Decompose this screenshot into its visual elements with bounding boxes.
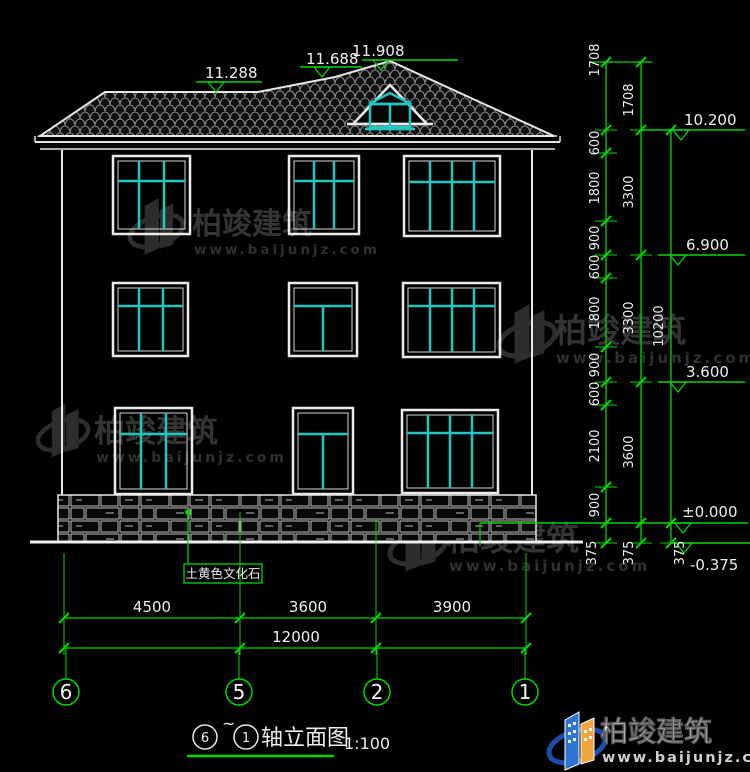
dim-label: 900 bbox=[588, 353, 603, 378]
plinth-stone-band bbox=[58, 495, 536, 542]
dim-label: 900 bbox=[588, 493, 603, 518]
dim-label: 1708 bbox=[588, 43, 603, 76]
roof-level-mid: 11.688 bbox=[306, 50, 359, 68]
title-axis-start: 6 bbox=[201, 731, 209, 746]
title-scale: 1:100 bbox=[344, 734, 390, 753]
axis-number: 6 bbox=[60, 680, 73, 704]
dim-label: 900 bbox=[588, 226, 603, 251]
level-label: ±0.000 bbox=[682, 503, 738, 521]
dim-label: 375 bbox=[673, 541, 688, 566]
title-axis-end: 1 bbox=[242, 731, 250, 746]
dim-label: 4500 bbox=[133, 598, 171, 616]
level-label: 3.600 bbox=[686, 363, 729, 381]
axis-number: 2 bbox=[371, 680, 384, 704]
brand-name: 柏竣建筑 bbox=[600, 715, 712, 748]
cad-elevation-screenshot: 柏竣建筑 www.baijunjz.com 柏竣建筑 www.baijunjz.… bbox=[0, 0, 750, 772]
roof-level-top: 11.908 bbox=[352, 42, 405, 60]
level-label: -0.375 bbox=[690, 556, 738, 574]
dim-label: 375 bbox=[585, 541, 600, 566]
elevation-drawing: 柏竣建筑 www.baijunjz.com 柏竣建筑 www.baijunjz.… bbox=[0, 0, 750, 772]
dim-label: 3600 bbox=[622, 435, 637, 468]
watermark-url-text: www.baijunjz.com bbox=[449, 557, 650, 575]
dim-label: 600 bbox=[588, 255, 603, 280]
axis-number: 1 bbox=[519, 680, 532, 704]
watermark-url-text: www.baijunjz.com bbox=[194, 242, 380, 258]
brand-url: www.baijunjz.com bbox=[602, 750, 750, 766]
dim-label: 3300 bbox=[622, 175, 637, 208]
dim-label: 3900 bbox=[433, 598, 471, 616]
stone-label: 土黄色文化石 bbox=[185, 566, 260, 581]
dim-label: 600 bbox=[588, 382, 603, 407]
dim-label: 375 bbox=[622, 541, 637, 566]
roof-level-left: 11.288 bbox=[205, 64, 258, 82]
dim-label: 3300 bbox=[622, 301, 637, 334]
level-label: 6.900 bbox=[686, 236, 729, 254]
dim-label: 3600 bbox=[289, 598, 327, 616]
watermark-brand-text: 柏竣建筑 bbox=[94, 414, 218, 450]
dim-label: 1708 bbox=[622, 83, 637, 116]
dim-label: 2100 bbox=[588, 429, 603, 462]
axis-number: 5 bbox=[233, 680, 246, 704]
dim-label: 1800 bbox=[588, 171, 603, 204]
dim-label: 1800 bbox=[588, 296, 603, 329]
stone-callout: 土黄色文化石 bbox=[185, 566, 260, 581]
dim-label-total: 12000 bbox=[272, 628, 320, 646]
level-label: 10.200 bbox=[684, 111, 737, 129]
title-text: 轴立面图 bbox=[261, 726, 349, 751]
title-tilde: ~ bbox=[222, 714, 235, 733]
dim-label: 10200 bbox=[652, 305, 667, 346]
dim-label: 600 bbox=[588, 131, 603, 156]
